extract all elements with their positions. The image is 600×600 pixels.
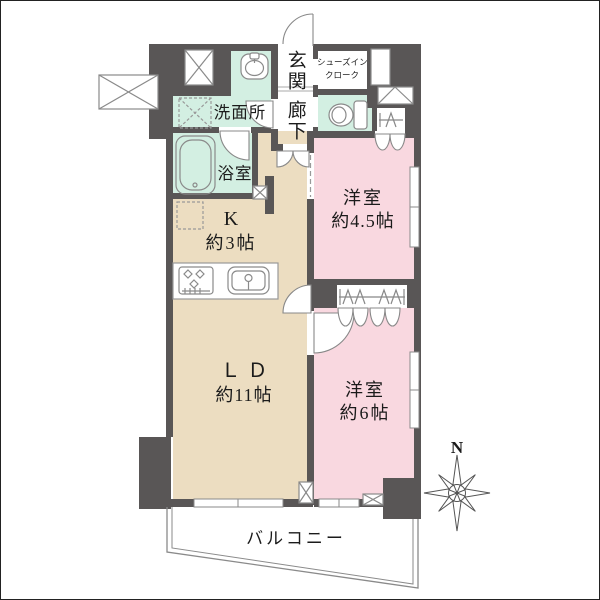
living-dining-label: ＬＤ 約11帖 xyxy=(174,359,314,407)
washbasin-icon xyxy=(241,53,268,79)
entrance-door-icon xyxy=(283,14,313,46)
corridor-door-gap xyxy=(283,144,307,151)
wall-entry-divider xyxy=(271,44,278,149)
wall-closet-row-right xyxy=(407,285,415,308)
wall-bath-kitchen xyxy=(166,193,258,199)
washroom-label-text: 洗面所 xyxy=(214,103,267,122)
sic-label-line2: クローク xyxy=(325,70,359,80)
wall-top-washroom xyxy=(231,44,278,51)
wall-sic-bottom xyxy=(313,89,376,95)
bedroom-2-size-text: 約6帖 xyxy=(340,403,391,423)
bedroom-1-size-text: 約4.5帖 xyxy=(331,211,395,231)
pipe-shaft-icon-bottom xyxy=(299,482,313,503)
toilet-door-gap xyxy=(313,97,318,127)
living-dining-size-text: 約11帖 xyxy=(215,385,272,405)
shutter-box-icon xyxy=(363,494,383,505)
wall-bottom-right-block xyxy=(383,478,421,519)
duct-triangle-icon xyxy=(378,87,413,104)
hallway-label: 廊下 xyxy=(283,97,307,145)
wall-bottom-left-block xyxy=(139,437,171,509)
wall-left xyxy=(166,133,173,437)
bathroom-label: 浴室 xyxy=(210,164,260,185)
bedroom-1-label: 洋室 約4.5帖 xyxy=(313,187,413,233)
entrance-label: 玄関 xyxy=(283,49,307,93)
north-label-text: N xyxy=(451,438,463,457)
kitchen-size-text: 約3帖 xyxy=(206,233,257,253)
bedroom-2-label-text: 洋室 xyxy=(345,380,385,400)
wall-corridor-stub xyxy=(271,144,283,151)
compass-star-icon xyxy=(424,455,490,531)
balcony-label-text: バルコニー xyxy=(246,529,346,548)
balcony-label: バルコニー xyxy=(229,528,363,549)
wall-closet-top-right xyxy=(405,102,415,133)
pipe-shaft-icon-top xyxy=(185,50,213,85)
bedroom2-door-gap xyxy=(307,311,314,355)
wall-closet-row-top xyxy=(307,279,414,285)
sic-label-line1: シューズイン xyxy=(317,57,368,67)
living-dining-label-text: ＬＤ xyxy=(221,360,275,382)
washroom-label: 洗面所 xyxy=(205,103,275,124)
north-label: N xyxy=(445,437,469,458)
pipe-shaft-icon-left xyxy=(99,75,158,109)
kitchen-label-text: K xyxy=(224,208,238,230)
bathroom-label-text: 浴室 xyxy=(218,164,253,183)
pipe-shaft-icon-corner xyxy=(371,49,390,85)
entrance-label-text: 玄関 xyxy=(285,50,306,92)
bedroom-1-label-text: 洋室 xyxy=(343,188,383,208)
kitchen-label: K 約3帖 xyxy=(181,207,281,255)
hallway-label-text: 廊下 xyxy=(285,100,306,142)
shoes-in-closet-label: シューズイン クローク xyxy=(317,56,367,82)
bedroom-2-label: 洋室 約6帖 xyxy=(315,379,415,425)
pipe-shaft-icon-bath xyxy=(253,186,267,199)
floorplan-canvas: 玄関 廊下 シューズイン クローク 洗面所 浴室 K 約3帖 ＬＤ 約11帖 洋… xyxy=(0,0,600,600)
